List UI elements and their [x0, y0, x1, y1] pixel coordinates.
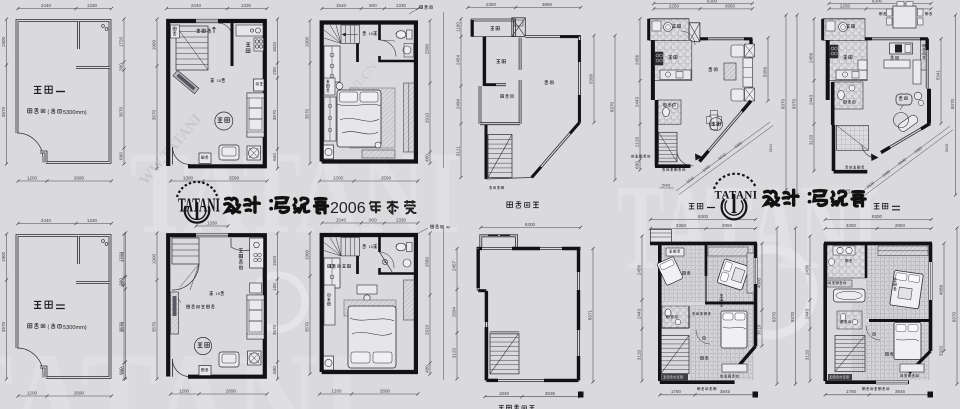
svg-text:2594: 2594 — [452, 306, 457, 317]
svg-text:1330: 1330 — [396, 217, 407, 222]
svg-text:2443: 2443 — [805, 308, 810, 319]
svg-text:2494: 2494 — [456, 98, 461, 109]
svg-text:1540: 1540 — [336, 217, 347, 222]
svg-text:900: 900 — [369, 3, 377, 8]
svg-text:5300mm): 5300mm) — [63, 110, 87, 116]
svg-text:3950: 3950 — [725, 3, 736, 8]
svg-text:2440: 2440 — [41, 218, 52, 223]
svg-text:TATANI: TATANI — [715, 189, 758, 201]
svg-text:1780: 1780 — [671, 389, 682, 394]
svg-text:(: ( — [48, 325, 50, 331]
svg-text:600: 600 — [119, 152, 124, 160]
svg-text:2250: 2250 — [669, 3, 680, 8]
svg-text:100: 100 — [272, 283, 277, 291]
svg-text:15: 15 — [217, 78, 222, 83]
svg-text:1720: 1720 — [120, 251, 125, 262]
svg-text:300: 300 — [119, 63, 124, 71]
svg-text:3845: 3845 — [720, 389, 731, 394]
svg-text:3570: 3570 — [305, 108, 310, 119]
svg-text:3570: 3570 — [119, 106, 124, 117]
svg-text:2440: 2440 — [41, 3, 52, 8]
svg-text:1300: 1300 — [333, 175, 344, 180]
svg-text:15: 15 — [216, 291, 221, 296]
svg-text:8370: 8370 — [781, 98, 786, 109]
svg-text:3014: 3014 — [768, 143, 773, 152]
svg-text:600: 600 — [272, 153, 277, 161]
svg-text:8370: 8370 — [792, 98, 797, 109]
svg-text:8370: 8370 — [772, 311, 777, 322]
svg-text:1900: 1900 — [152, 253, 157, 264]
svg-text:600: 600 — [635, 161, 640, 169]
svg-text:2443: 2443 — [635, 96, 640, 107]
svg-text:2456: 2456 — [809, 52, 814, 63]
svg-text:8371: 8371 — [588, 309, 593, 320]
svg-text:2456: 2456 — [637, 264, 642, 275]
svg-text:2006: 2006 — [330, 200, 366, 217]
svg-text:15: 15 — [369, 244, 374, 249]
svg-text:3570: 3570 — [272, 109, 277, 120]
svg-text:4889: 4889 — [939, 284, 944, 295]
svg-text:2690: 2690 — [380, 388, 391, 393]
svg-text:2590: 2590 — [229, 175, 240, 180]
svg-text:2850: 2850 — [722, 223, 733, 228]
svg-text:3935: 3935 — [545, 391, 556, 396]
svg-text:3570: 3570 — [152, 321, 157, 332]
svg-text:900: 900 — [369, 217, 377, 222]
svg-text:2580: 2580 — [425, 43, 430, 54]
svg-text:1330: 1330 — [87, 3, 98, 8]
svg-text:3121: 3121 — [456, 145, 461, 156]
svg-text:1900: 1900 — [305, 36, 310, 47]
svg-text:400: 400 — [425, 154, 430, 162]
svg-text:2350: 2350 — [486, 2, 497, 7]
svg-text:15: 15 — [369, 31, 374, 36]
svg-text:8370: 8370 — [790, 311, 795, 322]
svg-text:2440: 2440 — [191, 3, 202, 8]
svg-text:5300mm): 5300mm) — [63, 325, 87, 331]
svg-text:2850: 2850 — [895, 223, 906, 228]
svg-text:2457: 2457 — [452, 260, 457, 271]
svg-text:300: 300 — [120, 279, 125, 287]
svg-text:2436: 2436 — [805, 264, 810, 275]
svg-text:3120: 3120 — [452, 347, 457, 358]
svg-text:2690: 2690 — [74, 390, 85, 395]
svg-text:2690: 2690 — [226, 388, 237, 393]
svg-text:600: 600 — [120, 366, 125, 374]
svg-text:3320: 3320 — [939, 345, 944, 356]
svg-text:(: ( — [48, 110, 50, 116]
svg-text:5356: 5356 — [589, 73, 594, 84]
svg-text:1330: 1330 — [207, 220, 218, 225]
svg-text:1200: 1200 — [179, 388, 190, 393]
svg-text:1780: 1780 — [846, 389, 857, 394]
svg-text:1820: 1820 — [272, 41, 277, 52]
svg-text:[540]: [540] — [662, 183, 671, 188]
svg-text:1300: 1300 — [183, 175, 194, 180]
svg-text:8370: 8370 — [610, 101, 615, 112]
svg-text:3570: 3570 — [120, 321, 125, 332]
svg-text:3570: 3570 — [1, 321, 6, 332]
svg-text:8370: 8370 — [952, 311, 957, 322]
svg-text:1330: 1330 — [87, 218, 98, 223]
svg-text:3570: 3570 — [305, 321, 310, 332]
svg-text:2580: 2580 — [425, 256, 430, 267]
svg-text:5341: 5341 — [936, 69, 941, 80]
svg-text:5356: 5356 — [763, 66, 768, 77]
svg-text:2454: 2454 — [456, 54, 461, 65]
svg-text:2590: 2590 — [381, 175, 392, 180]
svg-text:1200: 1200 — [331, 388, 342, 393]
svg-text:6300: 6300 — [698, 214, 709, 219]
svg-text:600: 600 — [272, 366, 277, 374]
svg-text:3845: 3845 — [895, 389, 906, 394]
svg-text:1200: 1200 — [27, 390, 38, 395]
svg-text:3570: 3570 — [152, 109, 157, 120]
svg-text:1900: 1900 — [1, 251, 6, 262]
svg-text:3029: 3029 — [944, 144, 949, 153]
svg-text:3120: 3120 — [809, 134, 814, 145]
svg-text:1540: 1540 — [336, 3, 347, 8]
svg-text:1720: 1720 — [119, 36, 124, 47]
svg-text:6300: 6300 — [707, 0, 718, 4]
svg-text:200: 200 — [272, 67, 277, 75]
svg-text:8370: 8370 — [950, 98, 955, 109]
svg-text:1200: 1200 — [27, 175, 38, 180]
svg-text:1920: 1920 — [272, 255, 277, 266]
svg-text:6300: 6300 — [525, 222, 536, 227]
svg-text:2910: 2910 — [425, 324, 430, 335]
svg-text:3120: 3120 — [637, 349, 642, 360]
svg-text:2456: 2456 — [635, 54, 640, 65]
svg-text:1900: 1900 — [305, 249, 310, 260]
svg-text:6300: 6300 — [872, 0, 883, 4]
svg-text:3350: 3350 — [676, 223, 687, 228]
svg-text:1100: 1100 — [456, 22, 461, 32]
svg-text:3570: 3570 — [1, 106, 6, 117]
svg-text:1330: 1330 — [241, 3, 252, 8]
svg-text:1840: 1840 — [499, 391, 510, 396]
svg-text:3619: 3619 — [757, 324, 762, 335]
svg-text:2250: 2250 — [840, 3, 851, 8]
svg-text:2690: 2690 — [74, 175, 85, 180]
svg-text:1330: 1330 — [396, 3, 407, 8]
svg-text:TATANI: TATANI — [178, 195, 220, 217]
svg-text:3120: 3120 — [805, 349, 810, 360]
svg-text:2443: 2443 — [809, 94, 814, 105]
svg-text:2120: 2120 — [635, 136, 640, 147]
svg-text:40: 40 — [446, 226, 450, 230]
svg-text:2910: 2910 — [425, 112, 430, 123]
svg-text:1900: 1900 — [152, 39, 157, 50]
svg-text:3570: 3570 — [272, 324, 277, 335]
svg-text:400: 400 — [425, 365, 430, 373]
svg-text:6300: 6300 — [872, 214, 883, 219]
svg-text:1900: 1900 — [1, 36, 6, 47]
svg-text:3350: 3350 — [846, 223, 857, 228]
svg-text:2443: 2443 — [637, 308, 642, 319]
svg-text:3950: 3950 — [542, 2, 553, 7]
